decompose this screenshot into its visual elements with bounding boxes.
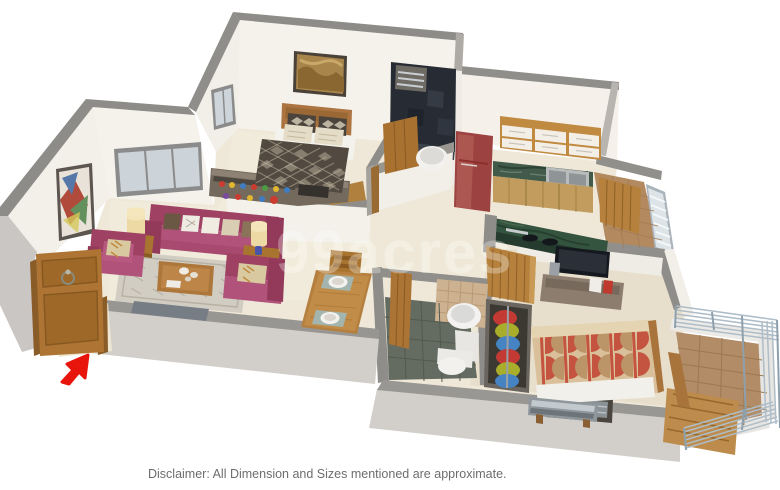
svg-text:Disclaimer: All Dimension and: Disclaimer: All Dimension and Sizes ment… (148, 467, 507, 481)
svg-text:99acres: 99acres (276, 219, 514, 286)
